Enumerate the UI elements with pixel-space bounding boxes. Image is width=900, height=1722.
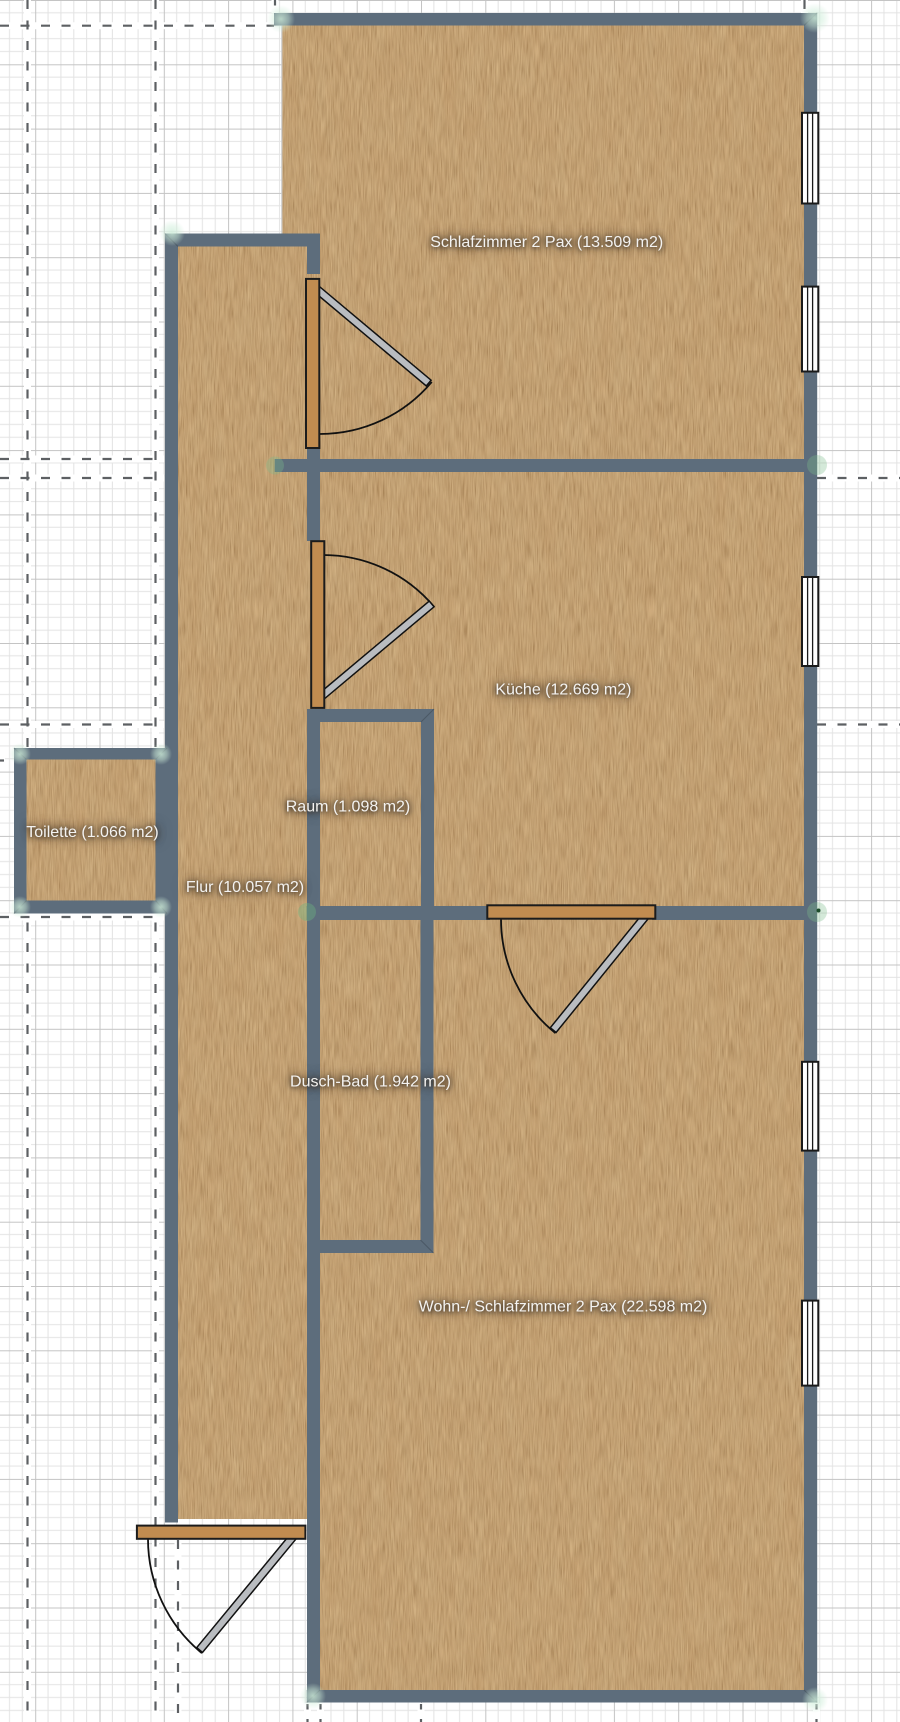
- svg-text:Wohn-/ Schlafzimmer 2 Pax (22.: Wohn-/ Schlafzimmer 2 Pax (22.598 m2): [419, 1299, 708, 1316]
- svg-text:Schlafzimmer 2 Pax (13.509 m2): Schlafzimmer 2 Pax (13.509 m2): [430, 234, 663, 251]
- svg-text:Küche (12.669 m2): Küche (12.669 m2): [495, 682, 631, 699]
- svg-text:Flur (10.057 m2): Flur (10.057 m2): [186, 879, 304, 896]
- svg-text:Toilette (1.066 m2): Toilette (1.066 m2): [26, 824, 159, 841]
- svg-text:Raum (1.098 m2): Raum (1.098 m2): [286, 799, 411, 816]
- svg-text:Dusch-Bad (1.942 m2): Dusch-Bad (1.942 m2): [290, 1074, 451, 1091]
